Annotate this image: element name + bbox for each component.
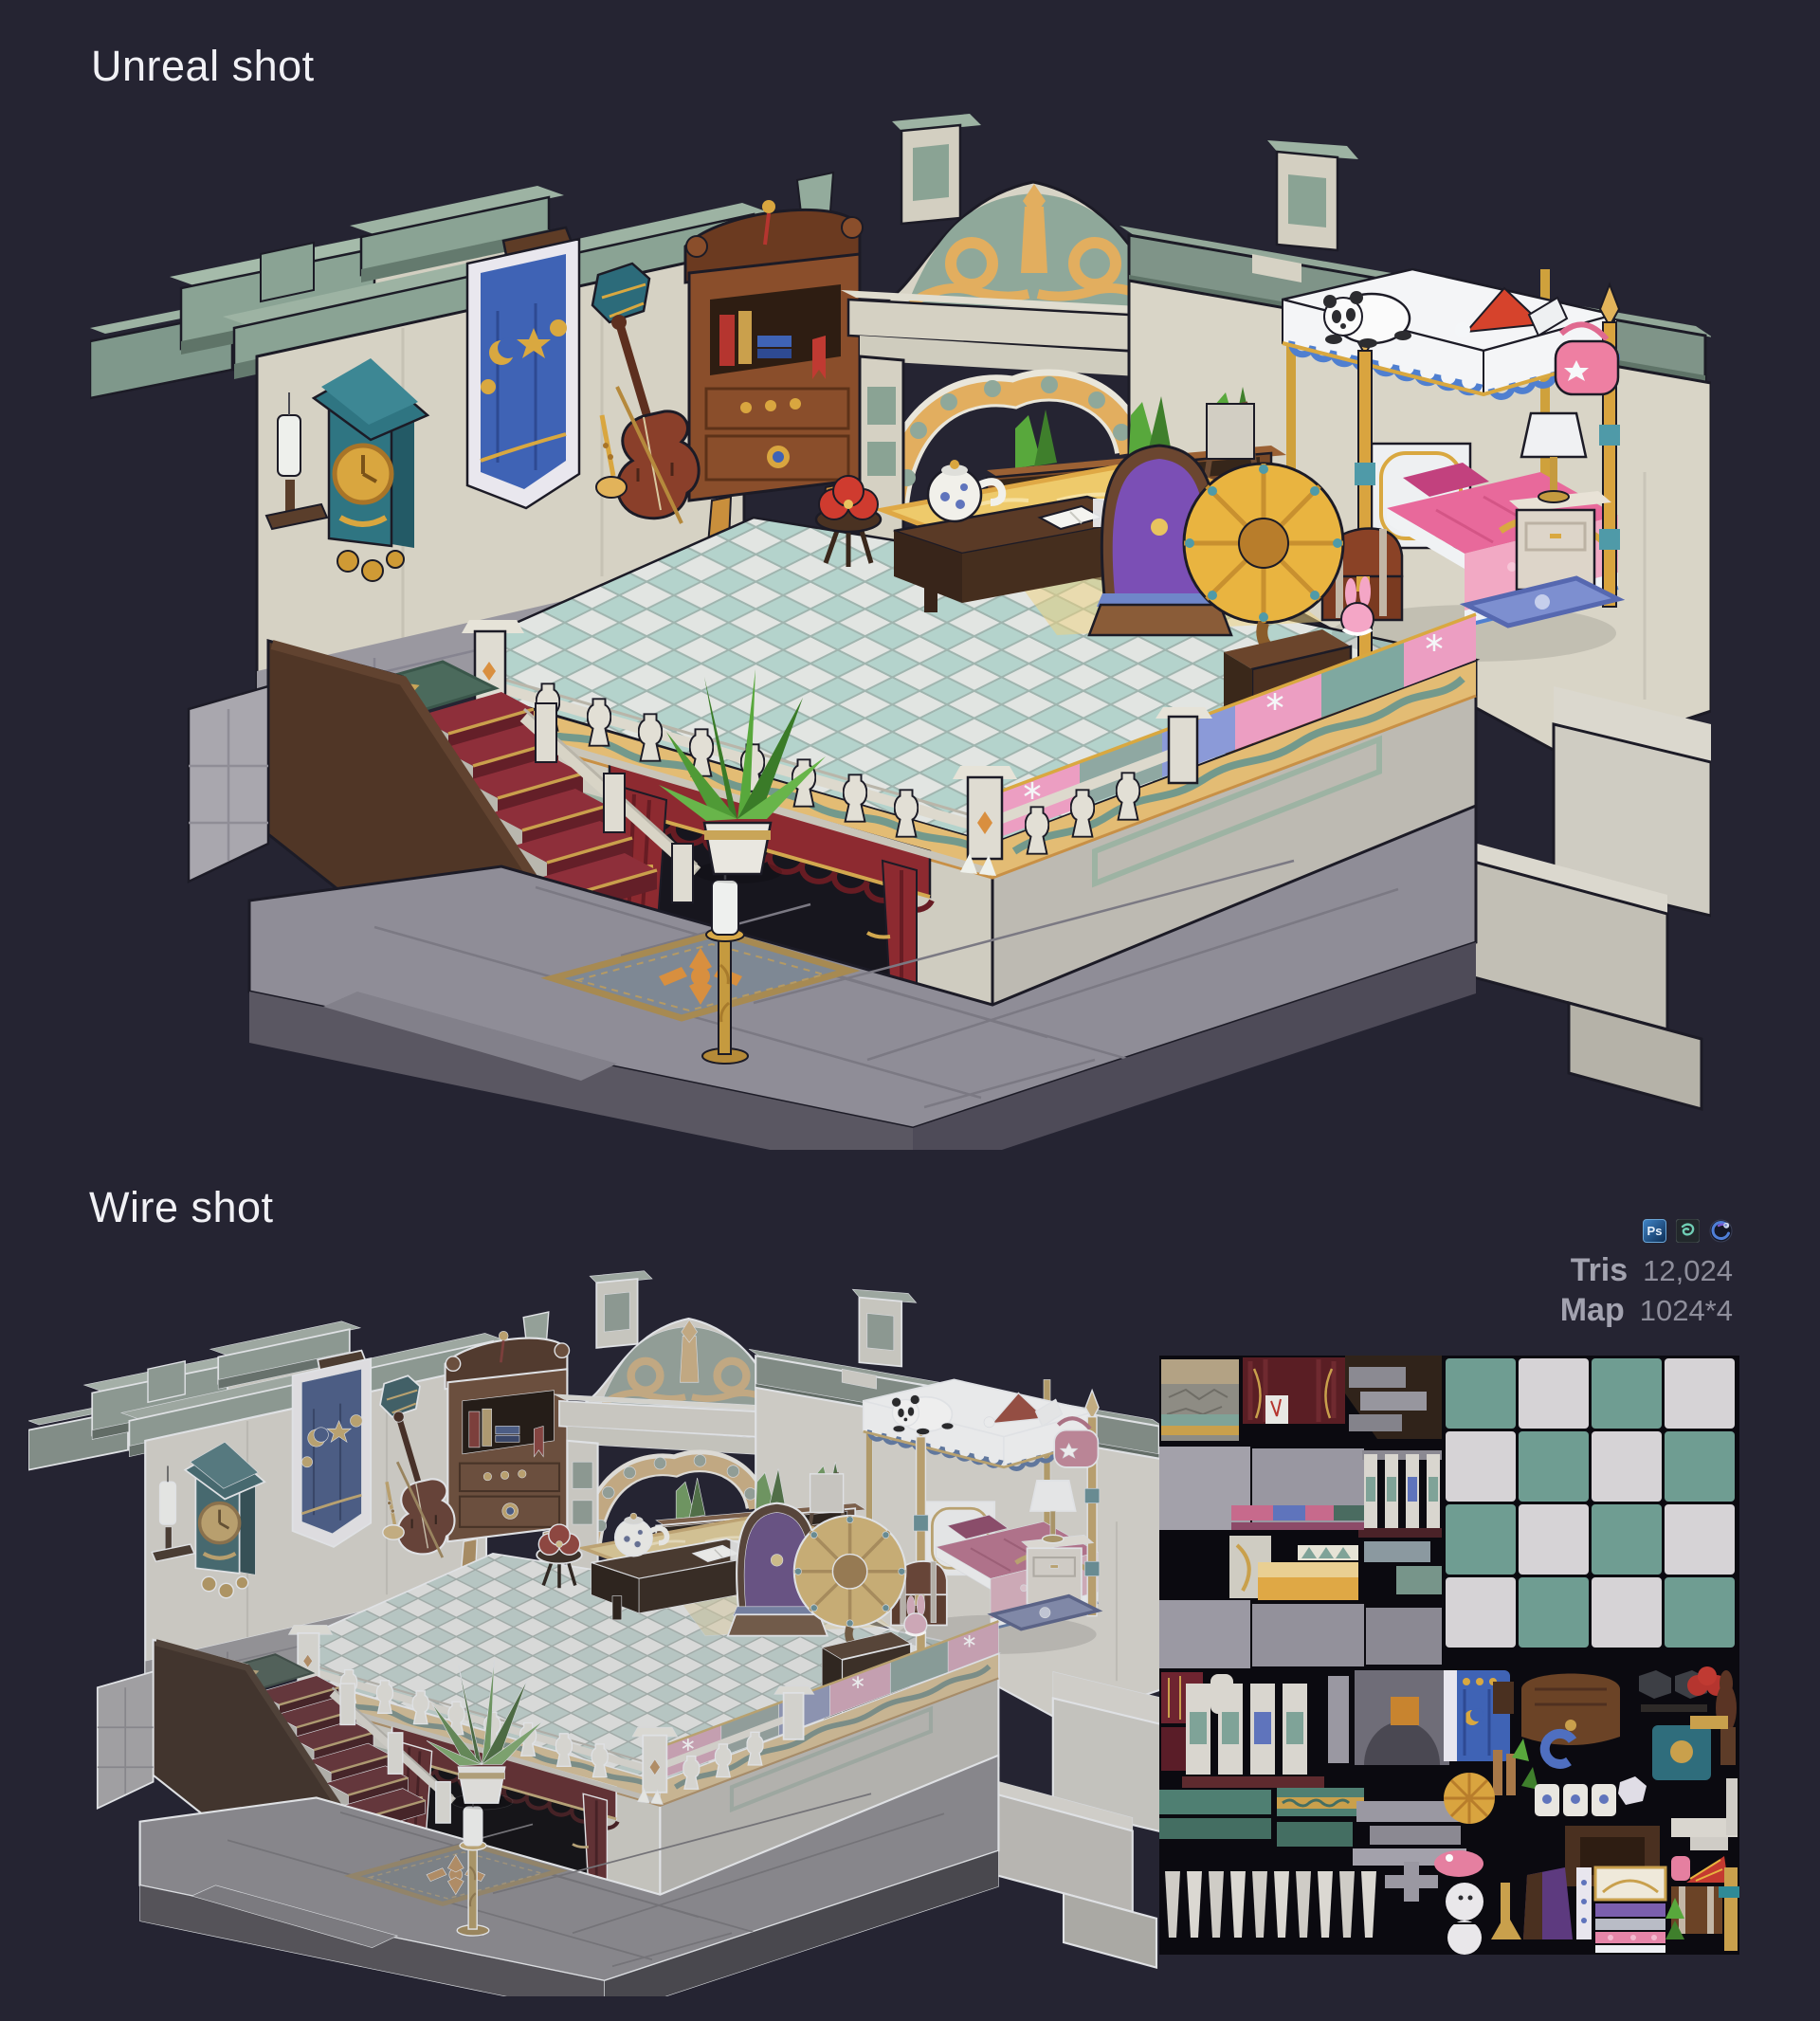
texture-atlas — [1159, 1356, 1739, 1955]
photoshop-abbr: Ps — [1647, 1224, 1663, 1238]
stats-panel: Ps Tris 12,024 Map 1024*4 — [1560, 1219, 1733, 1332]
map-stat: Map 1024*4 — [1560, 1292, 1733, 1332]
photoshop-icon: Ps — [1643, 1219, 1666, 1243]
unreal-shot-heading: Unreal shot — [91, 42, 315, 91]
tris-stat: Tris 12,024 — [1560, 1252, 1733, 1292]
moon-banner — [467, 228, 579, 508]
wire-render — [28, 1263, 1163, 1996]
map-label: Map — [1560, 1292, 1625, 1329]
software-icons: Ps — [1560, 1219, 1733, 1243]
3ds-max-icon — [1676, 1219, 1700, 1243]
wireframe-scene — [28, 1263, 1163, 1996]
map-value: 1024*4 — [1640, 1294, 1733, 1328]
tris-value: 12,024 — [1643, 1254, 1733, 1288]
cinema-4d-icon — [1709, 1219, 1733, 1243]
tris-label: Tris — [1571, 1252, 1628, 1289]
unreal-render — [90, 102, 1711, 1150]
wire-shot-heading: Wire shot — [89, 1183, 274, 1232]
panda-plush — [1323, 291, 1411, 348]
